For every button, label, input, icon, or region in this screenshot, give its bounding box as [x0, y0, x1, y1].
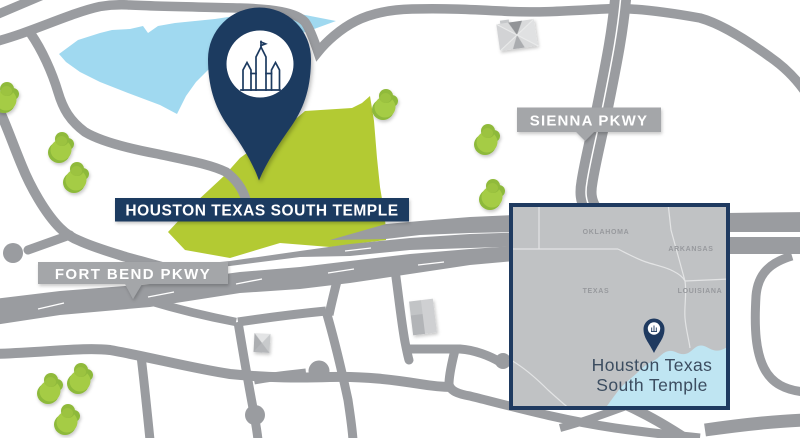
svg-text:HOUSTON TEXAS SOUTH TEMPLE: HOUSTON TEXAS SOUTH TEMPLE: [125, 203, 398, 220]
svg-text:OKLAHOMA: OKLAHOMA: [583, 229, 630, 236]
svg-text:TEXAS: TEXAS: [583, 288, 610, 295]
svg-text:FORT BEND PKWY: FORT BEND PKWY: [55, 266, 211, 283]
svg-text:ARKANSAS: ARKANSAS: [668, 246, 713, 253]
svg-text:LOUISIANA: LOUISIANA: [678, 288, 723, 295]
svg-text:South Temple: South Temple: [596, 375, 708, 395]
svg-text:SIENNA PKWY: SIENNA PKWY: [530, 113, 649, 130]
svg-text:Houston Texas: Houston Texas: [592, 355, 713, 375]
